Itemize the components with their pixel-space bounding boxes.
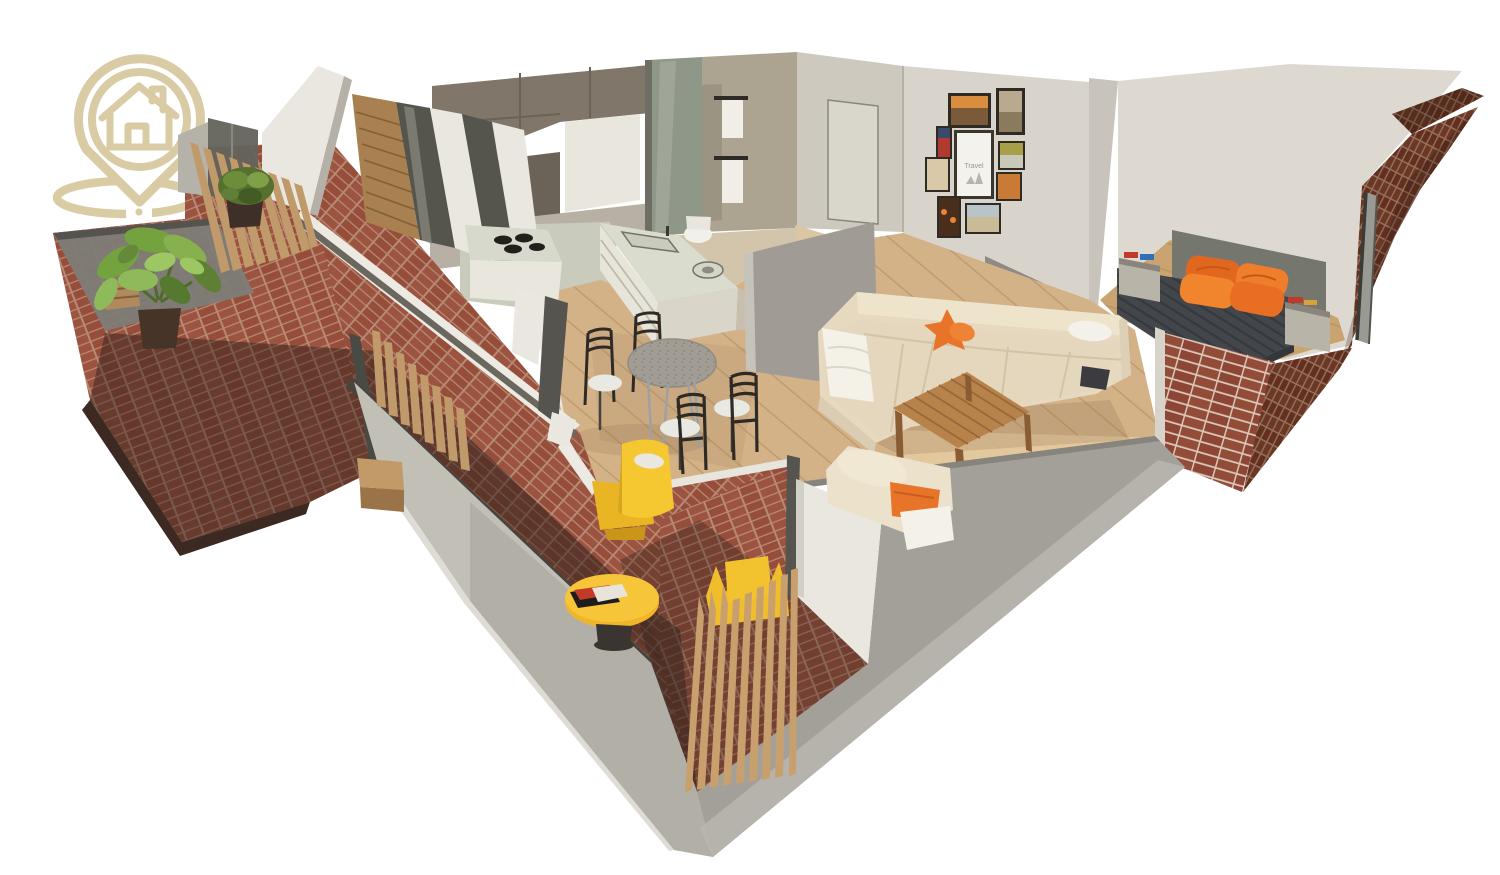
svg-text:Travel: Travel	[964, 163, 984, 170]
